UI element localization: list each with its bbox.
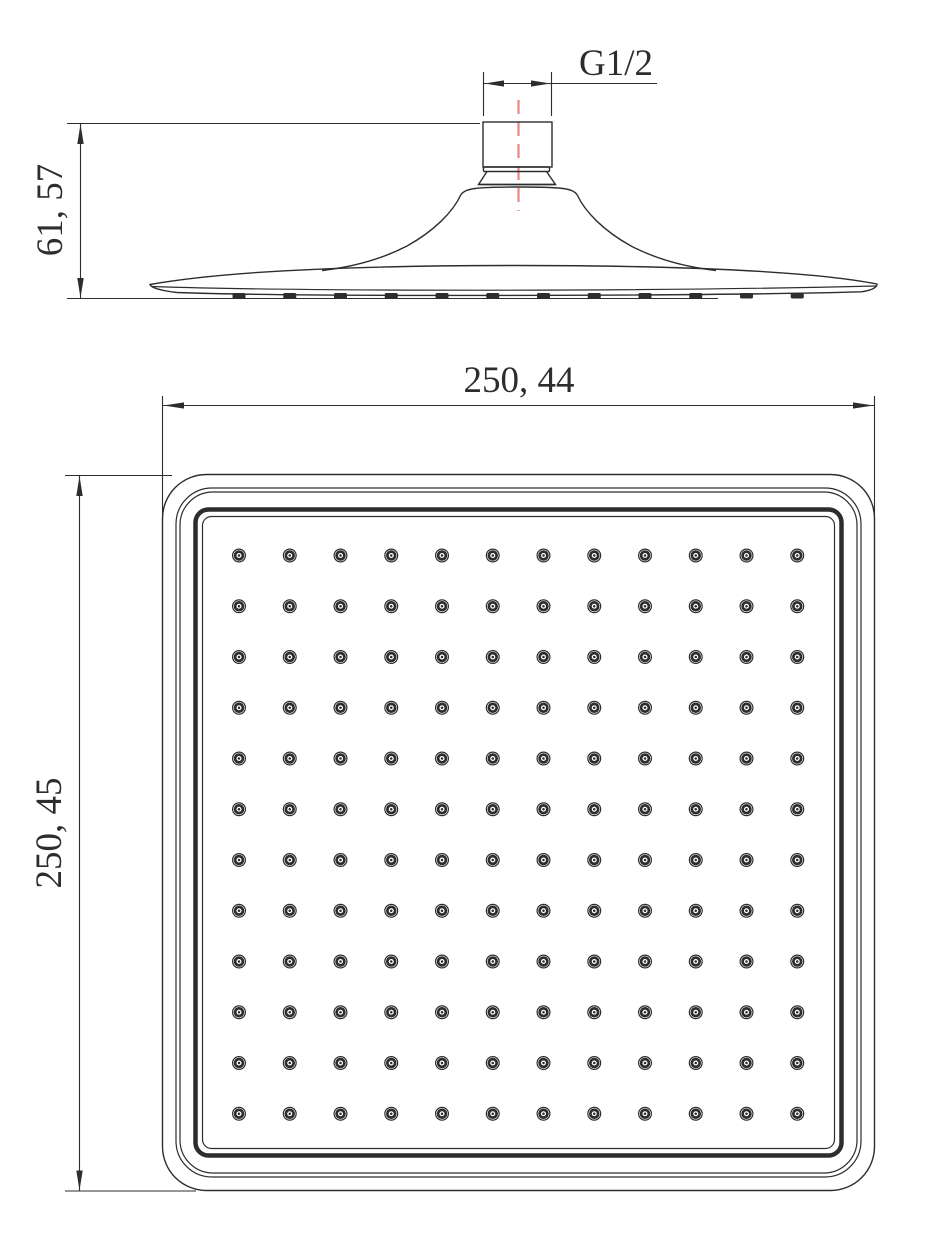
nozzle — [436, 854, 449, 867]
nozzle — [740, 600, 753, 613]
nozzle — [233, 904, 246, 917]
side-nozzle-bump — [588, 293, 601, 299]
nozzle — [283, 651, 296, 664]
nozzle — [689, 651, 702, 664]
nozzle — [689, 752, 702, 765]
nozzle — [334, 904, 347, 917]
nozzle — [385, 1006, 398, 1019]
nozzle — [385, 549, 398, 562]
nozzle — [334, 803, 347, 816]
nozzle-grid — [233, 549, 804, 1120]
nozzle — [740, 803, 753, 816]
nozzle — [639, 955, 652, 968]
head-body — [150, 266, 877, 296]
nozzle — [791, 854, 804, 867]
nozzle — [486, 549, 499, 562]
nozzle — [689, 854, 702, 867]
middle-rim-inner — [180, 492, 857, 1173]
side-height-label: 61, 57 — [30, 164, 71, 257]
nozzle — [639, 1006, 652, 1019]
side-nozzle-bump — [639, 293, 652, 299]
nozzle — [588, 1107, 601, 1120]
nozzle — [436, 1057, 449, 1070]
nozzle — [740, 955, 753, 968]
nozzle — [639, 1107, 652, 1120]
nozzle — [334, 1107, 347, 1120]
nozzle — [436, 701, 449, 714]
nozzle — [283, 955, 296, 968]
spray-plate-inner-line — [203, 517, 835, 1149]
nozzle — [689, 549, 702, 562]
nozzle — [385, 904, 398, 917]
arrowhead-up — [77, 124, 83, 144]
side-nozzle-bump — [334, 293, 347, 299]
shower-head-profile — [150, 122, 877, 299]
nozzle — [233, 752, 246, 765]
nozzle — [588, 752, 601, 765]
technical-drawing: G1/2 61, 57 — [0, 0, 928, 1248]
nozzle — [436, 752, 449, 765]
nozzle — [537, 1057, 550, 1070]
nozzle — [385, 752, 398, 765]
nozzle — [334, 854, 347, 867]
connector-neck — [479, 172, 556, 185]
arrowhead-up — [76, 476, 82, 496]
head-rim-seam — [152, 286, 876, 290]
side-nozzle-bump — [486, 293, 499, 299]
nozzle — [740, 1107, 753, 1120]
nozzle — [639, 549, 652, 562]
side-elevation-view: G1/2 61, 57 — [30, 43, 877, 299]
nozzle — [436, 955, 449, 968]
nozzle — [689, 701, 702, 714]
nozzle — [537, 1006, 550, 1019]
nozzle — [639, 752, 652, 765]
nozzle — [334, 651, 347, 664]
nozzle — [740, 701, 753, 714]
plan-height-dimension: 250, 45 — [29, 476, 196, 1192]
nozzle — [639, 803, 652, 816]
nozzle — [436, 904, 449, 917]
nozzle — [283, 904, 296, 917]
nozzle — [385, 1107, 398, 1120]
nozzle — [537, 904, 550, 917]
nozzle — [689, 1057, 702, 1070]
side-nozzle-bump — [537, 293, 550, 299]
connector-step — [484, 167, 550, 172]
nozzle — [436, 651, 449, 664]
bell-right — [577, 195, 716, 271]
nozzle — [486, 854, 499, 867]
bell-left — [322, 195, 461, 271]
arrowhead-down — [77, 278, 83, 298]
outer-rim — [163, 475, 875, 1191]
plan-view: 250, 44 250, 45 — [29, 360, 875, 1191]
nozzle — [436, 1006, 449, 1019]
nozzle — [588, 803, 601, 816]
nozzle — [486, 1006, 499, 1019]
nozzle — [283, 803, 296, 816]
nozzle — [233, 600, 246, 613]
nozzle — [233, 651, 246, 664]
nozzle — [537, 1107, 550, 1120]
nozzle — [486, 1057, 499, 1070]
nozzle — [385, 854, 398, 867]
nozzle — [791, 600, 804, 613]
nozzle — [791, 752, 804, 765]
nozzle — [334, 955, 347, 968]
nozzle — [791, 651, 804, 664]
nozzle — [283, 752, 296, 765]
nozzle — [588, 701, 601, 714]
nozzle — [791, 1107, 804, 1120]
nozzle — [588, 904, 601, 917]
nozzle — [588, 549, 601, 562]
nozzle — [791, 955, 804, 968]
nozzle — [283, 549, 296, 562]
nozzle — [791, 803, 804, 816]
nozzle — [588, 955, 601, 968]
side-nozzle-bump — [436, 293, 449, 299]
arrowhead-right — [531, 80, 551, 86]
face-plate-outlines — [163, 475, 875, 1191]
nozzle — [639, 651, 652, 664]
nozzle — [486, 701, 499, 714]
nozzle — [385, 701, 398, 714]
nozzle — [537, 701, 550, 714]
nozzle — [689, 955, 702, 968]
nozzle — [334, 1057, 347, 1070]
nozzle — [283, 1057, 296, 1070]
nozzle — [436, 803, 449, 816]
nozzle — [537, 955, 550, 968]
nozzle — [740, 904, 753, 917]
side-height-dimension: 61, 57 — [30, 124, 718, 299]
nozzle — [639, 600, 652, 613]
nozzle — [486, 955, 499, 968]
nozzle — [791, 904, 804, 917]
arrowhead-right — [853, 402, 874, 408]
nozzle — [639, 904, 652, 917]
nozzle — [689, 1006, 702, 1019]
nozzle — [537, 651, 550, 664]
arrowhead-down — [76, 1171, 82, 1191]
nozzle — [537, 600, 550, 613]
nozzle — [740, 854, 753, 867]
nozzle — [588, 1006, 601, 1019]
nozzle — [436, 1107, 449, 1120]
nozzle — [537, 549, 550, 562]
arrowhead-left — [164, 402, 185, 408]
nozzle — [233, 854, 246, 867]
thread-dimension: G1/2 — [484, 43, 658, 116]
nozzle — [639, 1057, 652, 1070]
nozzle — [283, 600, 296, 613]
thread-size-label: G1/2 — [579, 43, 653, 84]
nozzle — [233, 1006, 246, 1019]
nozzle — [740, 752, 753, 765]
nozzle — [486, 803, 499, 816]
nozzle — [334, 549, 347, 562]
arrowhead-left — [485, 80, 505, 86]
nozzle — [334, 600, 347, 613]
nozzle — [689, 1107, 702, 1120]
nozzle — [588, 1057, 601, 1070]
side-nozzle-bump — [385, 293, 398, 299]
nozzle — [537, 854, 550, 867]
nozzle — [436, 549, 449, 562]
side-nozzle-bump — [283, 293, 296, 299]
nozzle — [689, 600, 702, 613]
nozzle — [436, 600, 449, 613]
nozzle — [283, 701, 296, 714]
nozzle — [740, 651, 753, 664]
middle-rim-outer — [176, 488, 861, 1177]
nozzle — [486, 600, 499, 613]
side-nozzle-bump — [791, 293, 804, 299]
nozzle — [537, 752, 550, 765]
nozzle — [283, 854, 296, 867]
nozzle — [233, 1057, 246, 1070]
nozzle — [689, 904, 702, 917]
plan-width-label: 250, 44 — [464, 360, 575, 401]
nozzle — [791, 1006, 804, 1019]
nozzle — [740, 549, 753, 562]
nozzle — [588, 651, 601, 664]
plan-width-dimension: 250, 44 — [163, 360, 875, 520]
nozzle — [334, 1006, 347, 1019]
nozzle — [791, 549, 804, 562]
nozzle — [639, 701, 652, 714]
nozzle — [588, 854, 601, 867]
nozzle — [233, 1107, 246, 1120]
side-nozzle-bump — [689, 293, 702, 299]
nozzle — [537, 803, 550, 816]
nozzle — [385, 1057, 398, 1070]
nozzle — [740, 1006, 753, 1019]
nozzle — [385, 651, 398, 664]
nozzle — [334, 752, 347, 765]
nozzle — [486, 752, 499, 765]
side-nozzle-bump — [740, 293, 753, 299]
nozzle — [689, 803, 702, 816]
nozzle — [486, 904, 499, 917]
nozzle — [486, 1107, 499, 1120]
nozzle — [385, 955, 398, 968]
side-nozzle-bump — [233, 293, 246, 299]
nozzle — [283, 1107, 296, 1120]
nozzle — [233, 549, 246, 562]
nozzle — [791, 1057, 804, 1070]
plan-height-label: 250, 45 — [29, 778, 70, 889]
nozzle — [233, 701, 246, 714]
nozzle — [334, 701, 347, 714]
nozzle — [740, 1057, 753, 1070]
nozzle — [639, 854, 652, 867]
nozzle — [486, 651, 499, 664]
nozzle — [385, 600, 398, 613]
nozzle — [233, 803, 246, 816]
nozzle — [791, 701, 804, 714]
nozzle — [588, 600, 601, 613]
nozzle — [233, 955, 246, 968]
nozzle — [385, 803, 398, 816]
nozzle — [283, 1006, 296, 1019]
